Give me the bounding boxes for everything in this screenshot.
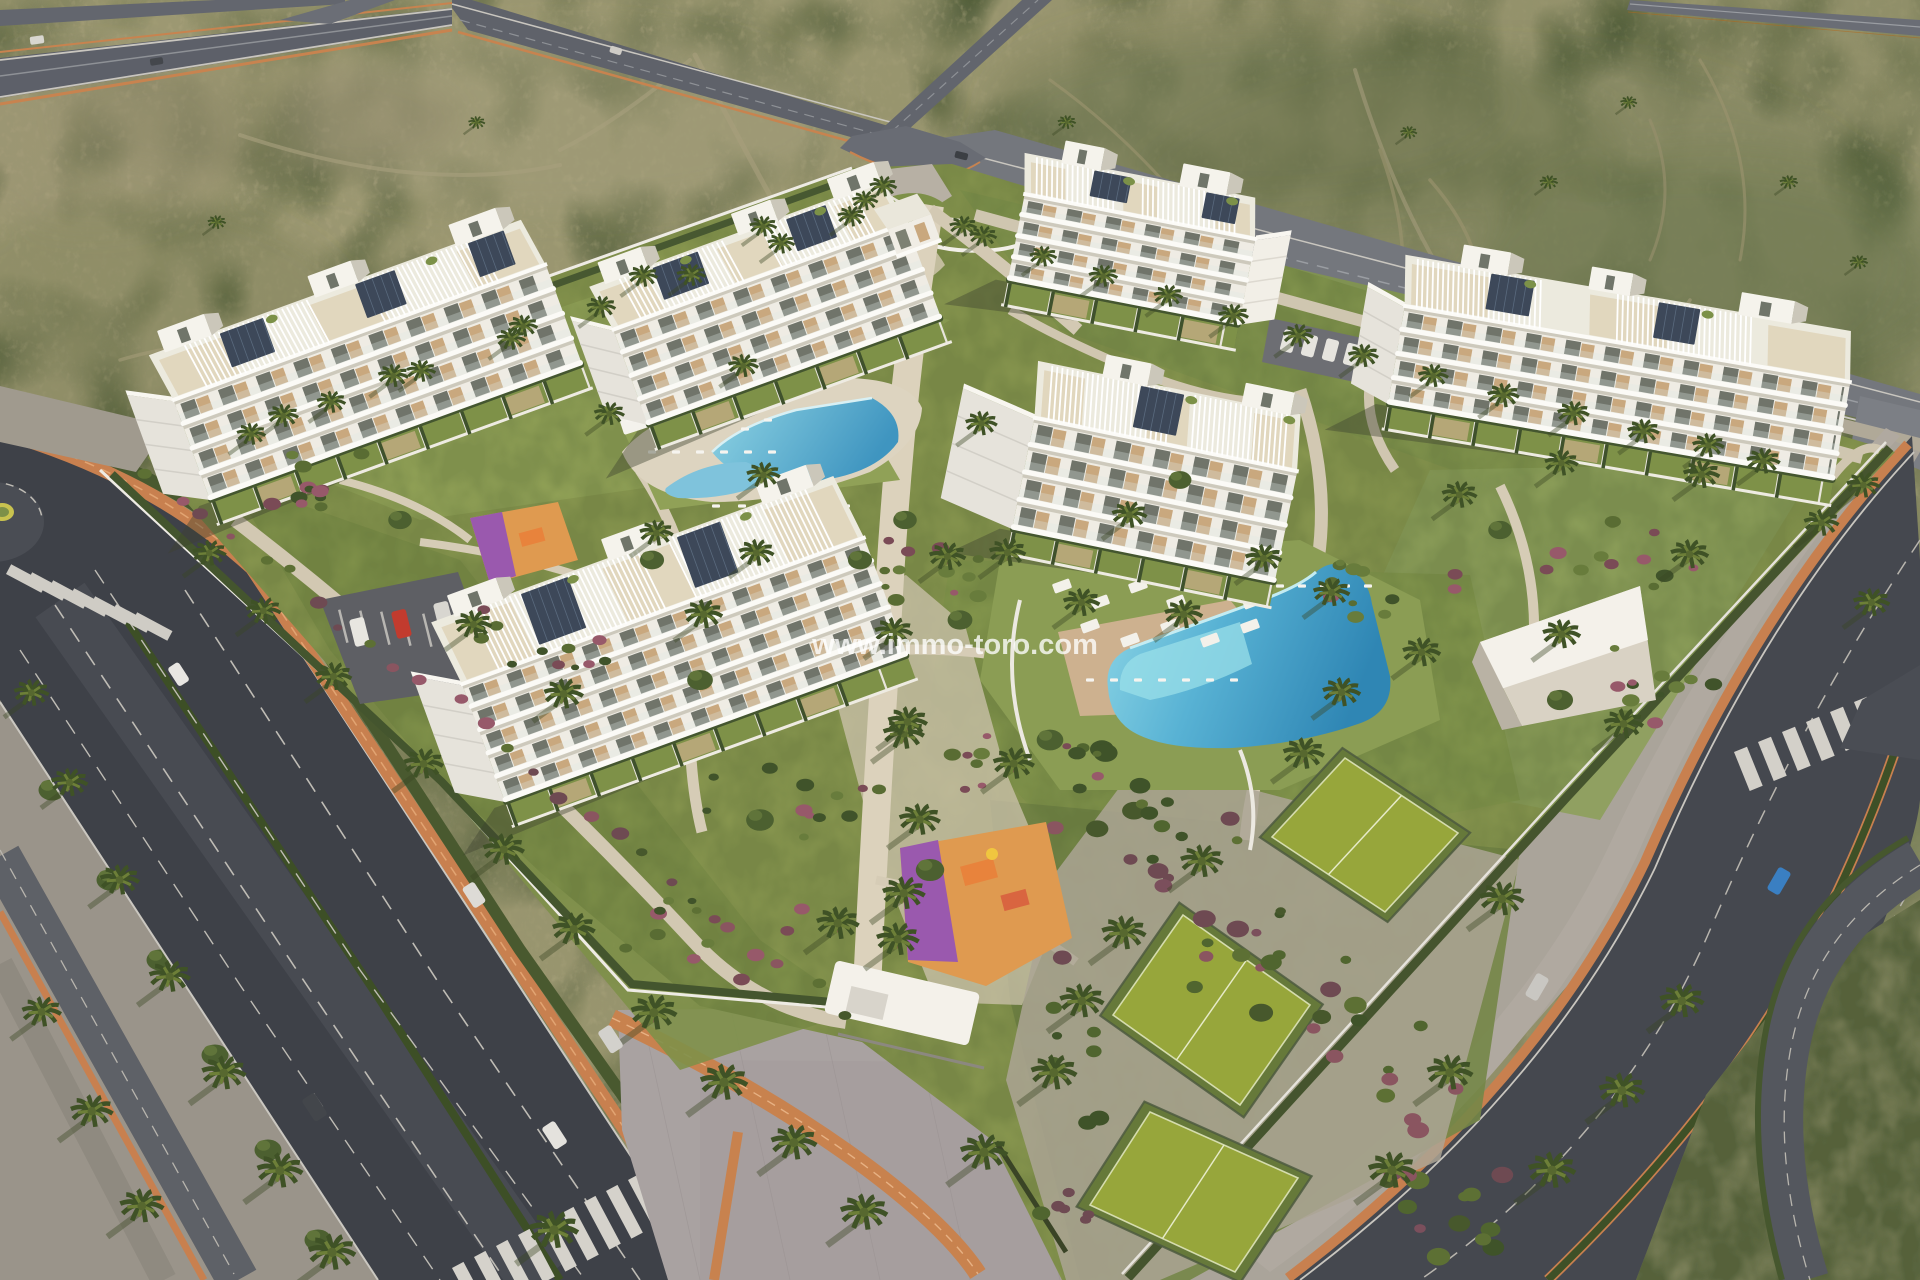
- svg-text:www.immo-toro.com: www.immo-toro.com: [811, 629, 1098, 661]
